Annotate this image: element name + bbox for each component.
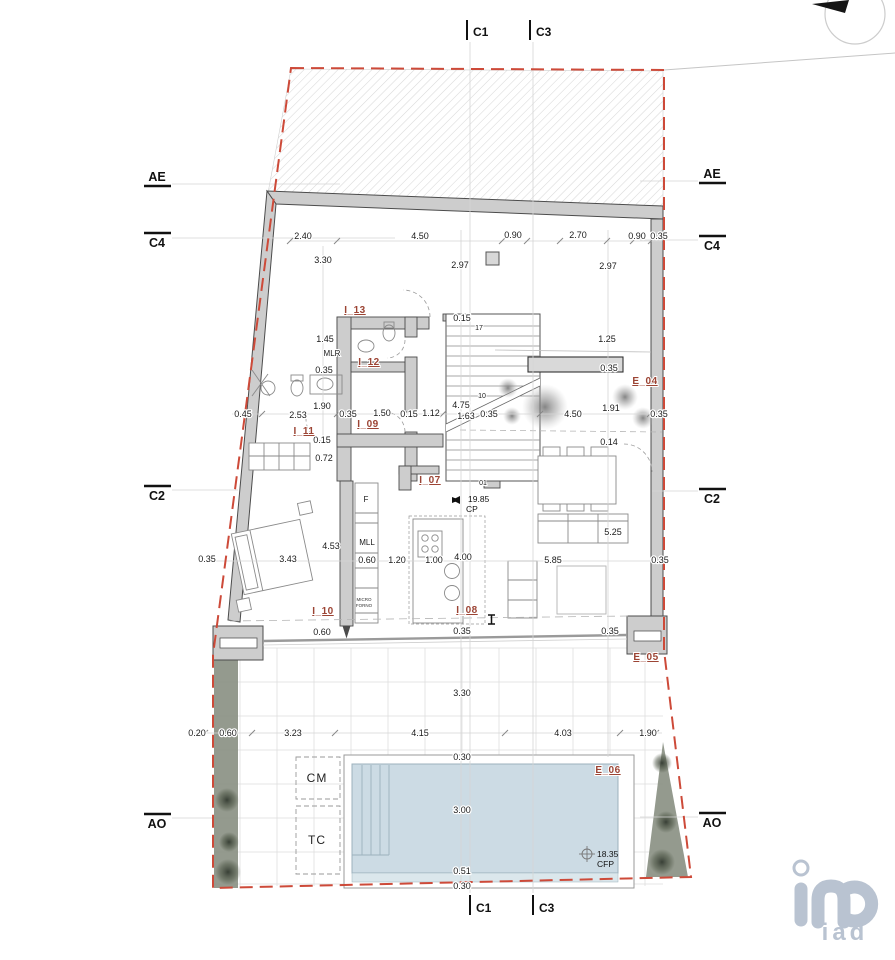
dim-text: 4.50 — [411, 231, 429, 241]
label-cm: CM — [307, 771, 328, 785]
dim-text: 3.43 — [279, 554, 297, 564]
dim-text: 1.25 — [598, 334, 616, 344]
dim-text: 0.45 — [234, 409, 252, 419]
section-label: C3 — [539, 901, 555, 915]
dim-text: 4.03 — [554, 728, 572, 738]
stair-number: 17 — [475, 325, 483, 332]
dim-text: 0.51 — [453, 866, 471, 876]
room-label-e06: E_06 — [595, 765, 620, 776]
dining-table — [538, 447, 616, 511]
section-marker-c3-bottom: C3 — [533, 895, 555, 915]
section-marker-c3-top: C3 — [530, 20, 552, 40]
nightstand — [297, 501, 312, 515]
dim-text: 0.60 — [358, 555, 376, 565]
dim-text: 0.15 — [453, 313, 471, 323]
cooktop — [418, 531, 442, 557]
logo-i-dot — [800, 867, 803, 870]
north-arrow-icon — [812, 0, 885, 44]
dim-text: 2.97 — [451, 260, 469, 270]
dim-text: 0.90 — [504, 230, 522, 240]
dim-text: 0.60 — [313, 627, 331, 637]
dim-text: 0.35 — [651, 555, 669, 565]
dim-text: 0.35 — [601, 626, 619, 636]
site-line — [664, 53, 895, 70]
label-forno: FORNO — [356, 603, 373, 608]
dim-text: 4.50 — [564, 409, 582, 419]
label-micro: MICRO — [357, 597, 372, 602]
dim-text: 0.90 — [628, 231, 646, 241]
floor-plan-page: 2.40 4.50 0.90 2.70 0.90 0.35 3.30 2.97 … — [0, 0, 895, 960]
level-cfp-label: CFP — [597, 859, 614, 869]
nightstand — [236, 598, 251, 612]
level-cp-value: 19.85 — [468, 494, 490, 504]
section-label: C4 — [704, 239, 720, 253]
dim-text: 4.00 — [454, 552, 472, 562]
label-mll: MLL — [359, 538, 375, 547]
dim-text: 0.15 — [313, 435, 331, 445]
section-label: AO — [148, 817, 167, 831]
stair-number: 01 — [479, 480, 487, 487]
section-label: C4 — [149, 236, 165, 250]
dim-text: 1.63 — [457, 411, 475, 421]
wall-kitchen — [340, 481, 353, 626]
label-mlr: MLR — [324, 349, 341, 358]
kitchen-cabinet-strip — [355, 483, 378, 623]
dim-text: 5.85 — [544, 555, 562, 565]
room-label-i12: I_12 — [358, 357, 379, 368]
planting-strip-left — [214, 650, 241, 888]
room-label-i11: I_11 — [294, 426, 315, 437]
dim-text: 2.97 — [599, 261, 617, 271]
room-label-i08: I_08 — [456, 605, 477, 616]
dim-text: 1.20 — [388, 555, 406, 565]
dim-text: 0.35 — [650, 231, 668, 241]
dim-text: 1.45 — [316, 334, 334, 344]
plant — [498, 378, 518, 398]
dim-text: 0.14 — [600, 437, 618, 447]
dim-text: 1.90 — [639, 728, 657, 738]
dim-text: 2.70 — [569, 230, 587, 240]
dim-text: 5.25 — [604, 527, 622, 537]
dim-text: 3.00 — [453, 805, 471, 815]
dim-text: 0.35 — [453, 626, 471, 636]
section-marker-c4-left: C4 — [144, 233, 171, 250]
section-label: C3 — [536, 25, 552, 39]
dim-text: 2.53 — [289, 410, 307, 420]
section-marker-c4-right: C4 — [699, 236, 726, 253]
floor-plan-drawing: 2.40 4.50 0.90 2.70 0.90 0.35 3.30 2.97 … — [0, 0, 895, 960]
dim-text: 0.35 — [339, 409, 357, 419]
section-marker-c1-bottom: C1 — [470, 895, 492, 915]
room-label-i07: I_07 — [419, 475, 440, 486]
section-label: AE — [148, 170, 165, 184]
room-label-e04: E_04 — [632, 376, 657, 387]
dim-text: 1.50 — [373, 408, 391, 418]
pool — [344, 755, 634, 888]
label-f: F — [364, 495, 369, 504]
planting-strip-right — [646, 742, 688, 877]
dim-text: 4.15 — [411, 728, 429, 738]
stair-number: 10 — [478, 393, 486, 400]
plant — [522, 384, 568, 430]
dim-text: 1.00 — [425, 555, 443, 565]
dim-text: 0.35 — [480, 409, 498, 419]
pool-water — [352, 764, 618, 873]
washbasin — [317, 378, 333, 390]
room-label-e05: E_05 — [633, 652, 658, 663]
section-marker-ae-left: AE — [144, 170, 171, 186]
dim-text: 3.30 — [314, 255, 332, 265]
plant — [503, 407, 521, 425]
dim-text: 3.30 — [453, 688, 471, 698]
wardrobe — [249, 443, 310, 470]
dim-text: 0.30 — [453, 881, 471, 891]
dim-text: 0.60 — [219, 728, 237, 738]
dim-text: 0.15 — [400, 409, 418, 419]
section-label: C2 — [704, 492, 720, 506]
dim-text: 0.30 — [453, 752, 471, 762]
label-tc: TC — [308, 833, 326, 847]
washbasin — [358, 340, 374, 352]
dim-text: 4.75 — [452, 400, 470, 410]
section-label: C1 — [473, 25, 489, 39]
section-marker-c2-right: C2 — [699, 489, 726, 506]
logo-wordmark: iad — [822, 919, 869, 946]
room-label-i10: I_10 — [312, 606, 333, 617]
column — [486, 252, 499, 265]
section-marker-ao-left: AO — [144, 814, 171, 831]
site-hatch-area — [268, 53, 895, 208]
section-marker-c1-top: C1 — [467, 20, 489, 40]
section-marker-ao-right: AO — [699, 813, 726, 830]
dim-text: 4.53 — [322, 541, 340, 551]
level-marker-cp — [452, 496, 460, 504]
dim-text: 3.23 — [284, 728, 302, 738]
dim-text: 0.35 — [198, 554, 216, 564]
dim-text: 1.12 — [422, 408, 440, 418]
level-cfp-value: 18.35 — [597, 849, 619, 859]
section-label: AE — [703, 167, 720, 181]
room-label-i09: I_09 — [357, 419, 378, 430]
section-marker-ae-right: AE — [699, 167, 726, 183]
dim-text: 0.35 — [315, 365, 333, 375]
dim-text: 1.90 — [313, 401, 331, 411]
toilet — [291, 380, 303, 396]
rug — [557, 566, 606, 614]
dim-text: 2.40 — [294, 231, 312, 241]
room-label-i13: I_13 — [344, 305, 365, 316]
section-label: AO — [703, 816, 722, 830]
dim-text: 1.91 — [602, 403, 620, 413]
section-marker-c2-left: C2 — [144, 486, 171, 503]
dim-text: 0.20 — [188, 728, 206, 738]
section-label: C1 — [476, 901, 492, 915]
dim-text: 0.72 — [315, 453, 333, 463]
section-cut-symbol — [488, 615, 495, 624]
level-cp-label: CP — [466, 504, 478, 514]
iad-logo: iad — [800, 867, 872, 947]
dim-text: 0.35 — [600, 363, 618, 373]
dim-text: 0.35 — [650, 409, 668, 419]
section-label: C2 — [149, 489, 165, 503]
